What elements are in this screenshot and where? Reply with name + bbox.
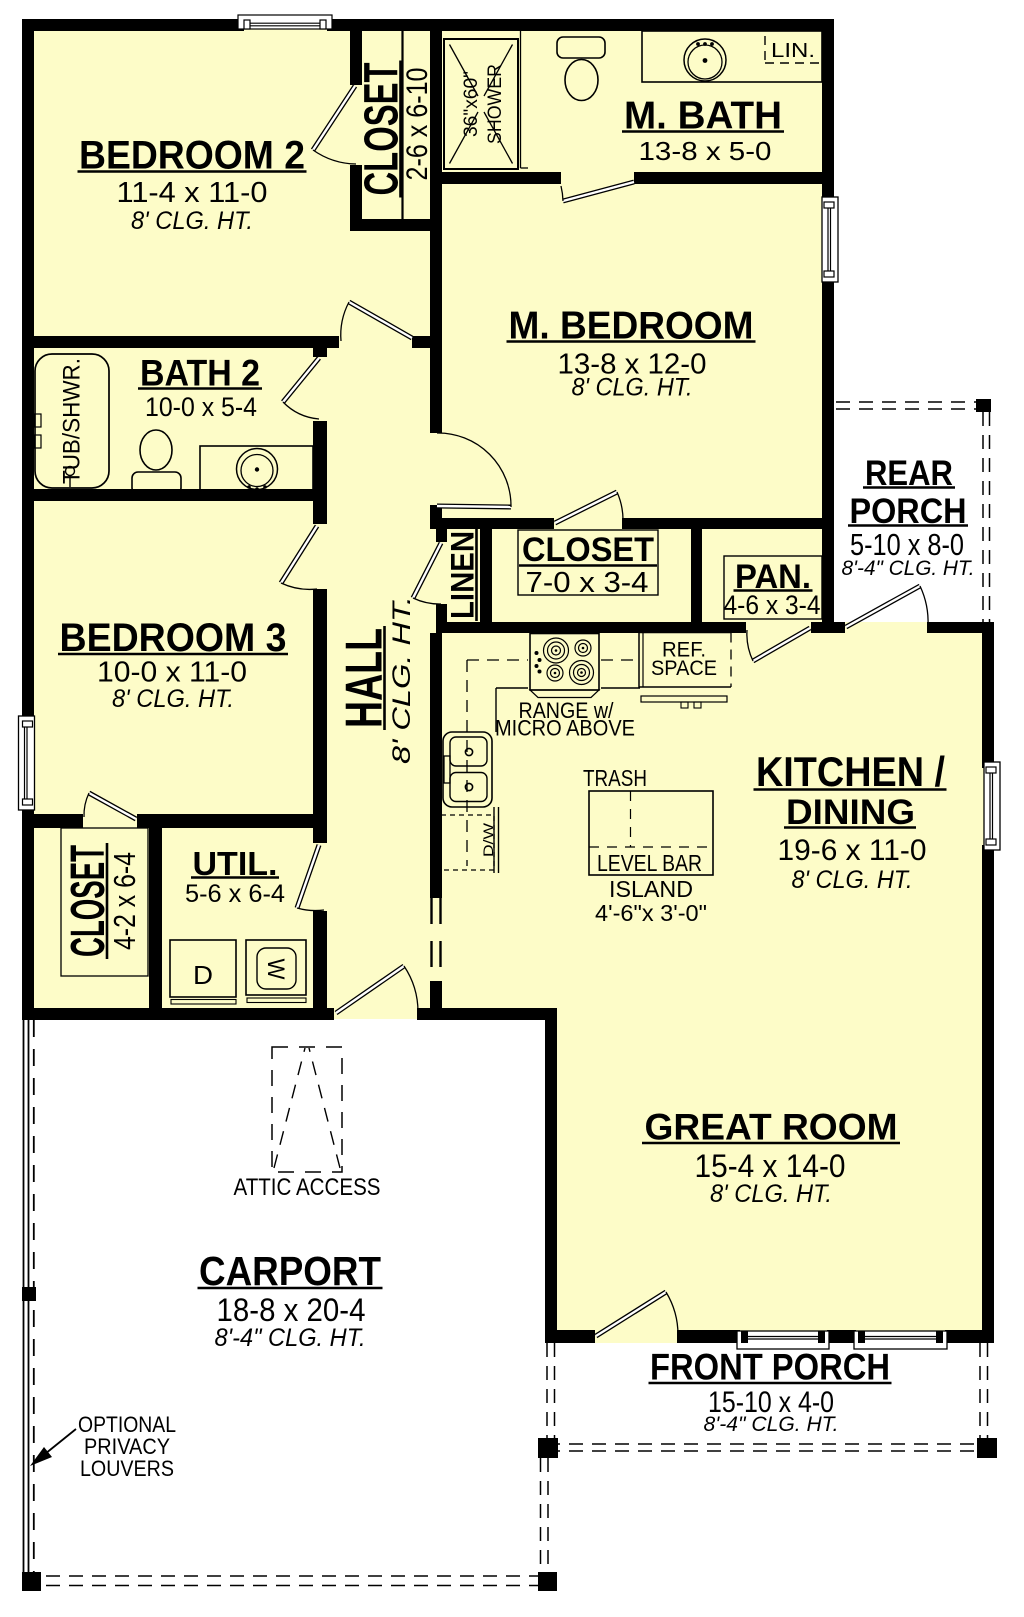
svg-text:D/W: D/W bbox=[480, 822, 496, 857]
svg-text:4'-6"x 3'-0": 4'-6"x 3'-0" bbox=[595, 900, 707, 926]
svg-text:19-6 x 11-0: 19-6 x 11-0 bbox=[778, 834, 927, 867]
svg-text:ATTIC ACCESS: ATTIC ACCESS bbox=[234, 1174, 381, 1201]
svg-text:8' CLG. HT.: 8' CLG. HT. bbox=[112, 685, 234, 713]
svg-text:8' CLG. HT.: 8' CLG. HT. bbox=[710, 1180, 832, 1208]
svg-text:LEVEL BAR: LEVEL BAR bbox=[597, 850, 702, 876]
svg-text:4-6 x 3-4: 4-6 x 3-4 bbox=[724, 590, 821, 620]
svg-text:10-0 x 5-4: 10-0 x 5-4 bbox=[145, 392, 257, 422]
svg-text:SHOWER: SHOWER bbox=[485, 64, 506, 144]
svg-text:2-6 x 6-10: 2-6 x 6-10 bbox=[401, 68, 434, 181]
svg-text:TRASH: TRASH bbox=[583, 765, 647, 791]
svg-text:8'-4" CLG. HT.: 8'-4" CLG. HT. bbox=[215, 1324, 366, 1352]
svg-text:SPACE: SPACE bbox=[651, 657, 717, 680]
svg-text:DINING: DINING bbox=[786, 793, 915, 832]
svg-text:13-8 x 5-0: 13-8 x 5-0 bbox=[639, 136, 772, 166]
svg-text:TUB/SHWR.: TUB/SHWR. bbox=[59, 358, 86, 484]
svg-text:36"x60": 36"x60" bbox=[461, 71, 482, 137]
svg-text:8'-4" CLG. HT.: 8'-4" CLG. HT. bbox=[704, 1413, 839, 1436]
svg-text:W: W bbox=[262, 959, 289, 980]
svg-text:ISLAND: ISLAND bbox=[609, 876, 693, 902]
svg-text:5-6 x 6-4: 5-6 x 6-4 bbox=[185, 880, 285, 908]
svg-text:18-8 x 20-4: 18-8 x 20-4 bbox=[217, 1292, 366, 1328]
svg-text:10-0 x 11-0: 10-0 x 11-0 bbox=[97, 657, 247, 689]
svg-text:FRONT PORCH: FRONT PORCH bbox=[650, 1347, 890, 1388]
svg-text:MICRO ABOVE: MICRO ABOVE bbox=[495, 716, 635, 741]
svg-text:LIN.: LIN. bbox=[771, 40, 815, 62]
svg-text:8'-4" CLG. HT.: 8'-4" CLG. HT. bbox=[842, 557, 975, 580]
svg-text:8' CLG. HT.: 8' CLG. HT. bbox=[131, 207, 253, 235]
svg-text:8' CLG. HT.: 8' CLG. HT. bbox=[792, 866, 913, 894]
svg-text:KITCHEN /: KITCHEN / bbox=[756, 748, 945, 795]
svg-text:7-0 x 3-4: 7-0 x 3-4 bbox=[526, 567, 649, 599]
svg-text:GREAT ROOM: GREAT ROOM bbox=[645, 1107, 898, 1148]
svg-text:CLOSET: CLOSET bbox=[522, 531, 654, 569]
svg-text:4-2 x 6-4: 4-2 x 6-4 bbox=[107, 852, 142, 950]
svg-text:8' CLG. HT.: 8' CLG. HT. bbox=[572, 374, 693, 402]
svg-text:11-4 x 11-0: 11-4 x 11-0 bbox=[117, 177, 268, 209]
svg-text:15-4 x 14-0: 15-4 x 14-0 bbox=[695, 1148, 846, 1184]
svg-text:D: D bbox=[193, 960, 213, 990]
svg-text:LINEN: LINEN bbox=[445, 531, 481, 619]
svg-text:LOUVERS: LOUVERS bbox=[80, 1456, 174, 1481]
svg-text:8' CLG. HT.: 8' CLG. HT. bbox=[388, 596, 416, 764]
